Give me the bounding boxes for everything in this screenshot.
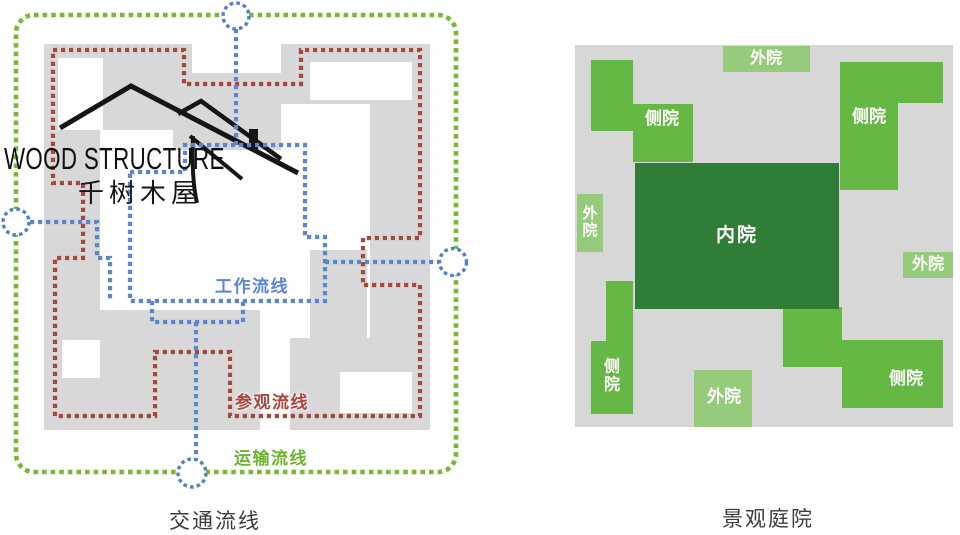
side-yard-bottom-right-block <box>783 307 842 367</box>
visit-flow-label: 参观流线 <box>235 394 309 411</box>
outer-yard-right-label: 外院 <box>912 256 944 274</box>
logo-wordmark-en: WOOD STRUCTURE <box>4 143 225 174</box>
logo-wordmark-cn: 千树木屋 <box>78 179 202 208</box>
outer-yard-left-label: 外院 <box>581 205 599 240</box>
entry-circle-left <box>3 209 29 235</box>
side-yard-top-left-block <box>591 60 633 131</box>
side-yard-bottom-right-label: 侧院 <box>889 369 923 389</box>
side-yard-top-right-label: 侧院 <box>852 107 886 127</box>
entry-circle-right <box>440 249 467 276</box>
side-yard-bottom-left-block <box>606 281 633 341</box>
inner-yard-label: 内院 <box>716 225 758 247</box>
work-flow-label: 工作流线 <box>215 278 289 295</box>
entry-circle-bottom <box>178 459 206 487</box>
side-yard-bottom-left-label: 侧院 <box>603 359 621 396</box>
outer-yard-top-label: 外院 <box>750 50 782 68</box>
entry-circle-top <box>223 3 249 29</box>
page: { "left_panel": { "caption": "交通流线", "lo… <box>0 0 960 535</box>
left-diagram-caption: 交通流线 <box>169 511 261 532</box>
transport-flow-label: 运输流线 <box>234 450 308 467</box>
side-yard-top-left-label: 侧院 <box>645 109 679 129</box>
outer-yard-bottom-label: 外院 <box>707 387 741 407</box>
right-diagram-caption: 景观庭院 <box>722 509 814 530</box>
